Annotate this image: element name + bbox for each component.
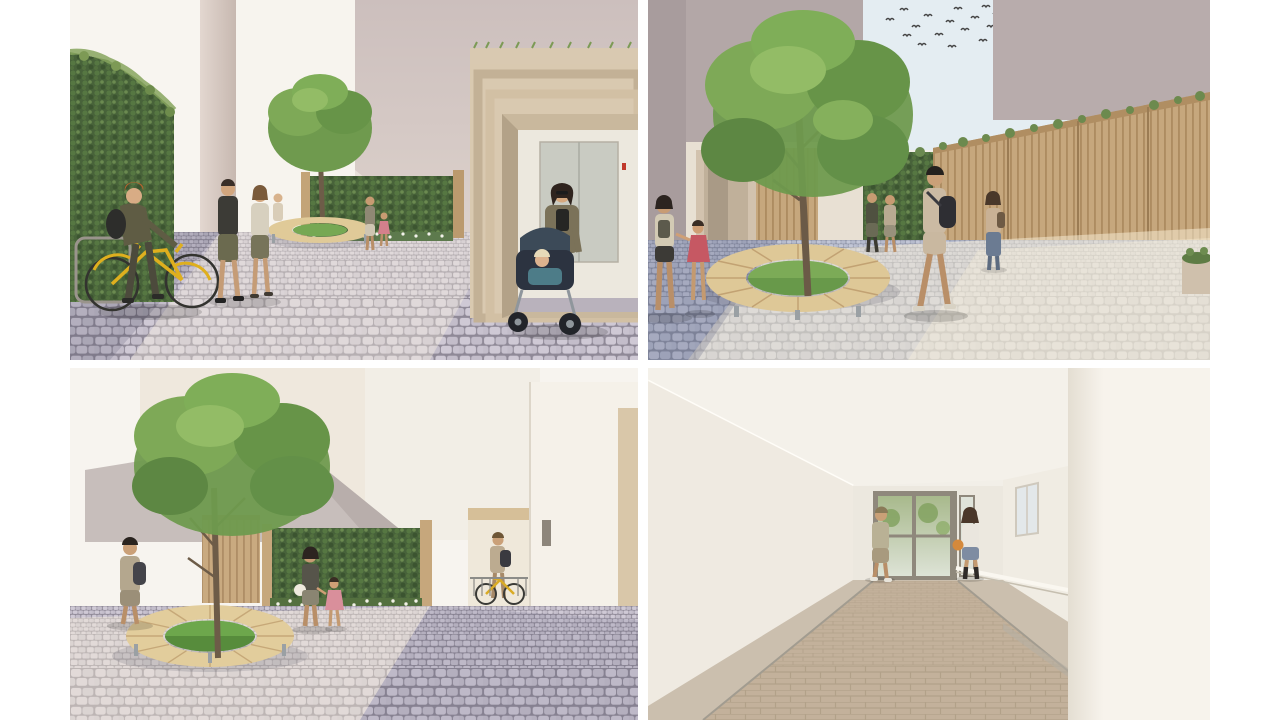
render-panel-courtyard-green-wall xyxy=(70,368,638,720)
orange-ball xyxy=(953,540,964,551)
render-panel-courtyard-tree-fence xyxy=(648,0,1210,360)
living-green-wall xyxy=(262,520,432,619)
render-panel-entrance-corridor xyxy=(648,368,1210,720)
recessed-window xyxy=(1016,483,1038,536)
render-panel-courtyard-bike-elevator xyxy=(70,0,638,360)
elevator-indicator-light xyxy=(622,163,626,170)
planter xyxy=(1182,247,1210,294)
render-collage xyxy=(0,0,1280,720)
window-slot xyxy=(542,520,551,546)
bike-shed-passage xyxy=(468,508,530,620)
near-right-pillar xyxy=(1068,368,1210,720)
